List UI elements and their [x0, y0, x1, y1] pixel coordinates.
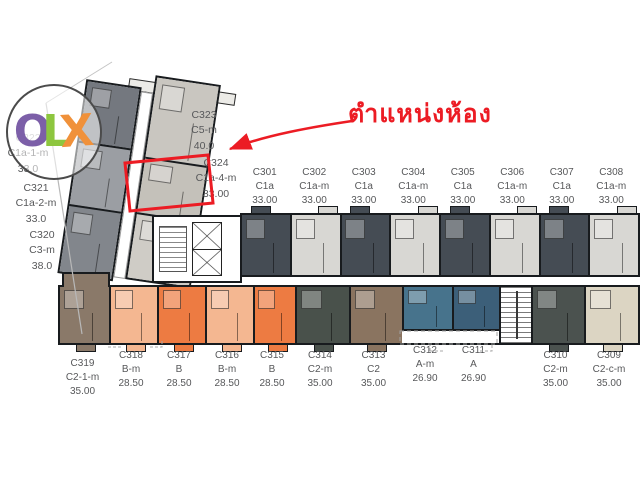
- unit-C306: [489, 215, 539, 275]
- elevator-cab-icon: [193, 249, 221, 276]
- unit-C310: [531, 287, 584, 343]
- elevator-core: [152, 215, 242, 283]
- unit-C314: [295, 287, 349, 343]
- unit-C315: [253, 287, 295, 343]
- elevator-shaft: [192, 222, 222, 276]
- unit-C316: [205, 287, 253, 343]
- unit-C313: [349, 287, 402, 343]
- unit-C317: [157, 287, 205, 343]
- unit-C318: [109, 287, 157, 343]
- core-stairs: [159, 226, 187, 272]
- label-line: 33.00: [579, 194, 640, 208]
- unit-C319-extension: [62, 272, 110, 287]
- floorplan-canvas: C322 C1a-1-m 33.0 C321 C1a-2-m 33.0 C320…: [0, 0, 640, 480]
- unit-C309: [584, 287, 638, 343]
- annotation-arrow: [230, 121, 352, 149]
- unit-C303: [340, 215, 390, 275]
- bottom-unit-band: [58, 285, 640, 345]
- balcony: [76, 344, 96, 352]
- unit-C308: [588, 215, 638, 275]
- label-line: C1a-m: [579, 180, 640, 194]
- label-line: 26.90: [442, 372, 506, 386]
- unit-C304: [389, 215, 439, 275]
- olx-watermark: O L X: [6, 84, 102, 180]
- label-top_row-7: C308C1a-m33.00: [579, 166, 640, 208]
- label-line: C2-c-m: [577, 363, 640, 377]
- top-unit-band: [240, 213, 640, 277]
- annotation-text: ตำแหน่งห้อง: [348, 94, 492, 134]
- unit-C301: [242, 215, 290, 275]
- label-C321: C321 C1a-2-m 33.0: [4, 181, 68, 227]
- unit-C305: [439, 215, 489, 275]
- label-C323: C323 C5-m 40.0: [172, 108, 236, 154]
- elevator-cab-icon: [193, 223, 221, 249]
- label-line: C311: [442, 344, 506, 358]
- unit-C312: [402, 287, 452, 331]
- stairs: [499, 287, 531, 343]
- unit-C311: [452, 287, 499, 331]
- unit-C302: [290, 215, 340, 275]
- unit-C319: [60, 287, 109, 343]
- label-line: C309: [577, 349, 640, 363]
- label-bottom_row-8: C311A26.90: [442, 344, 506, 386]
- label-C320: C320 C3-m 38.0: [10, 228, 74, 274]
- unit-C307: [539, 215, 589, 275]
- label-line: A: [442, 358, 506, 372]
- label-line: 35.00: [577, 377, 640, 391]
- olx-letter-x: X: [59, 109, 96, 155]
- label-bottom_row-10: C309C2-c-m35.00: [577, 349, 640, 391]
- label-line: C308: [579, 166, 640, 180]
